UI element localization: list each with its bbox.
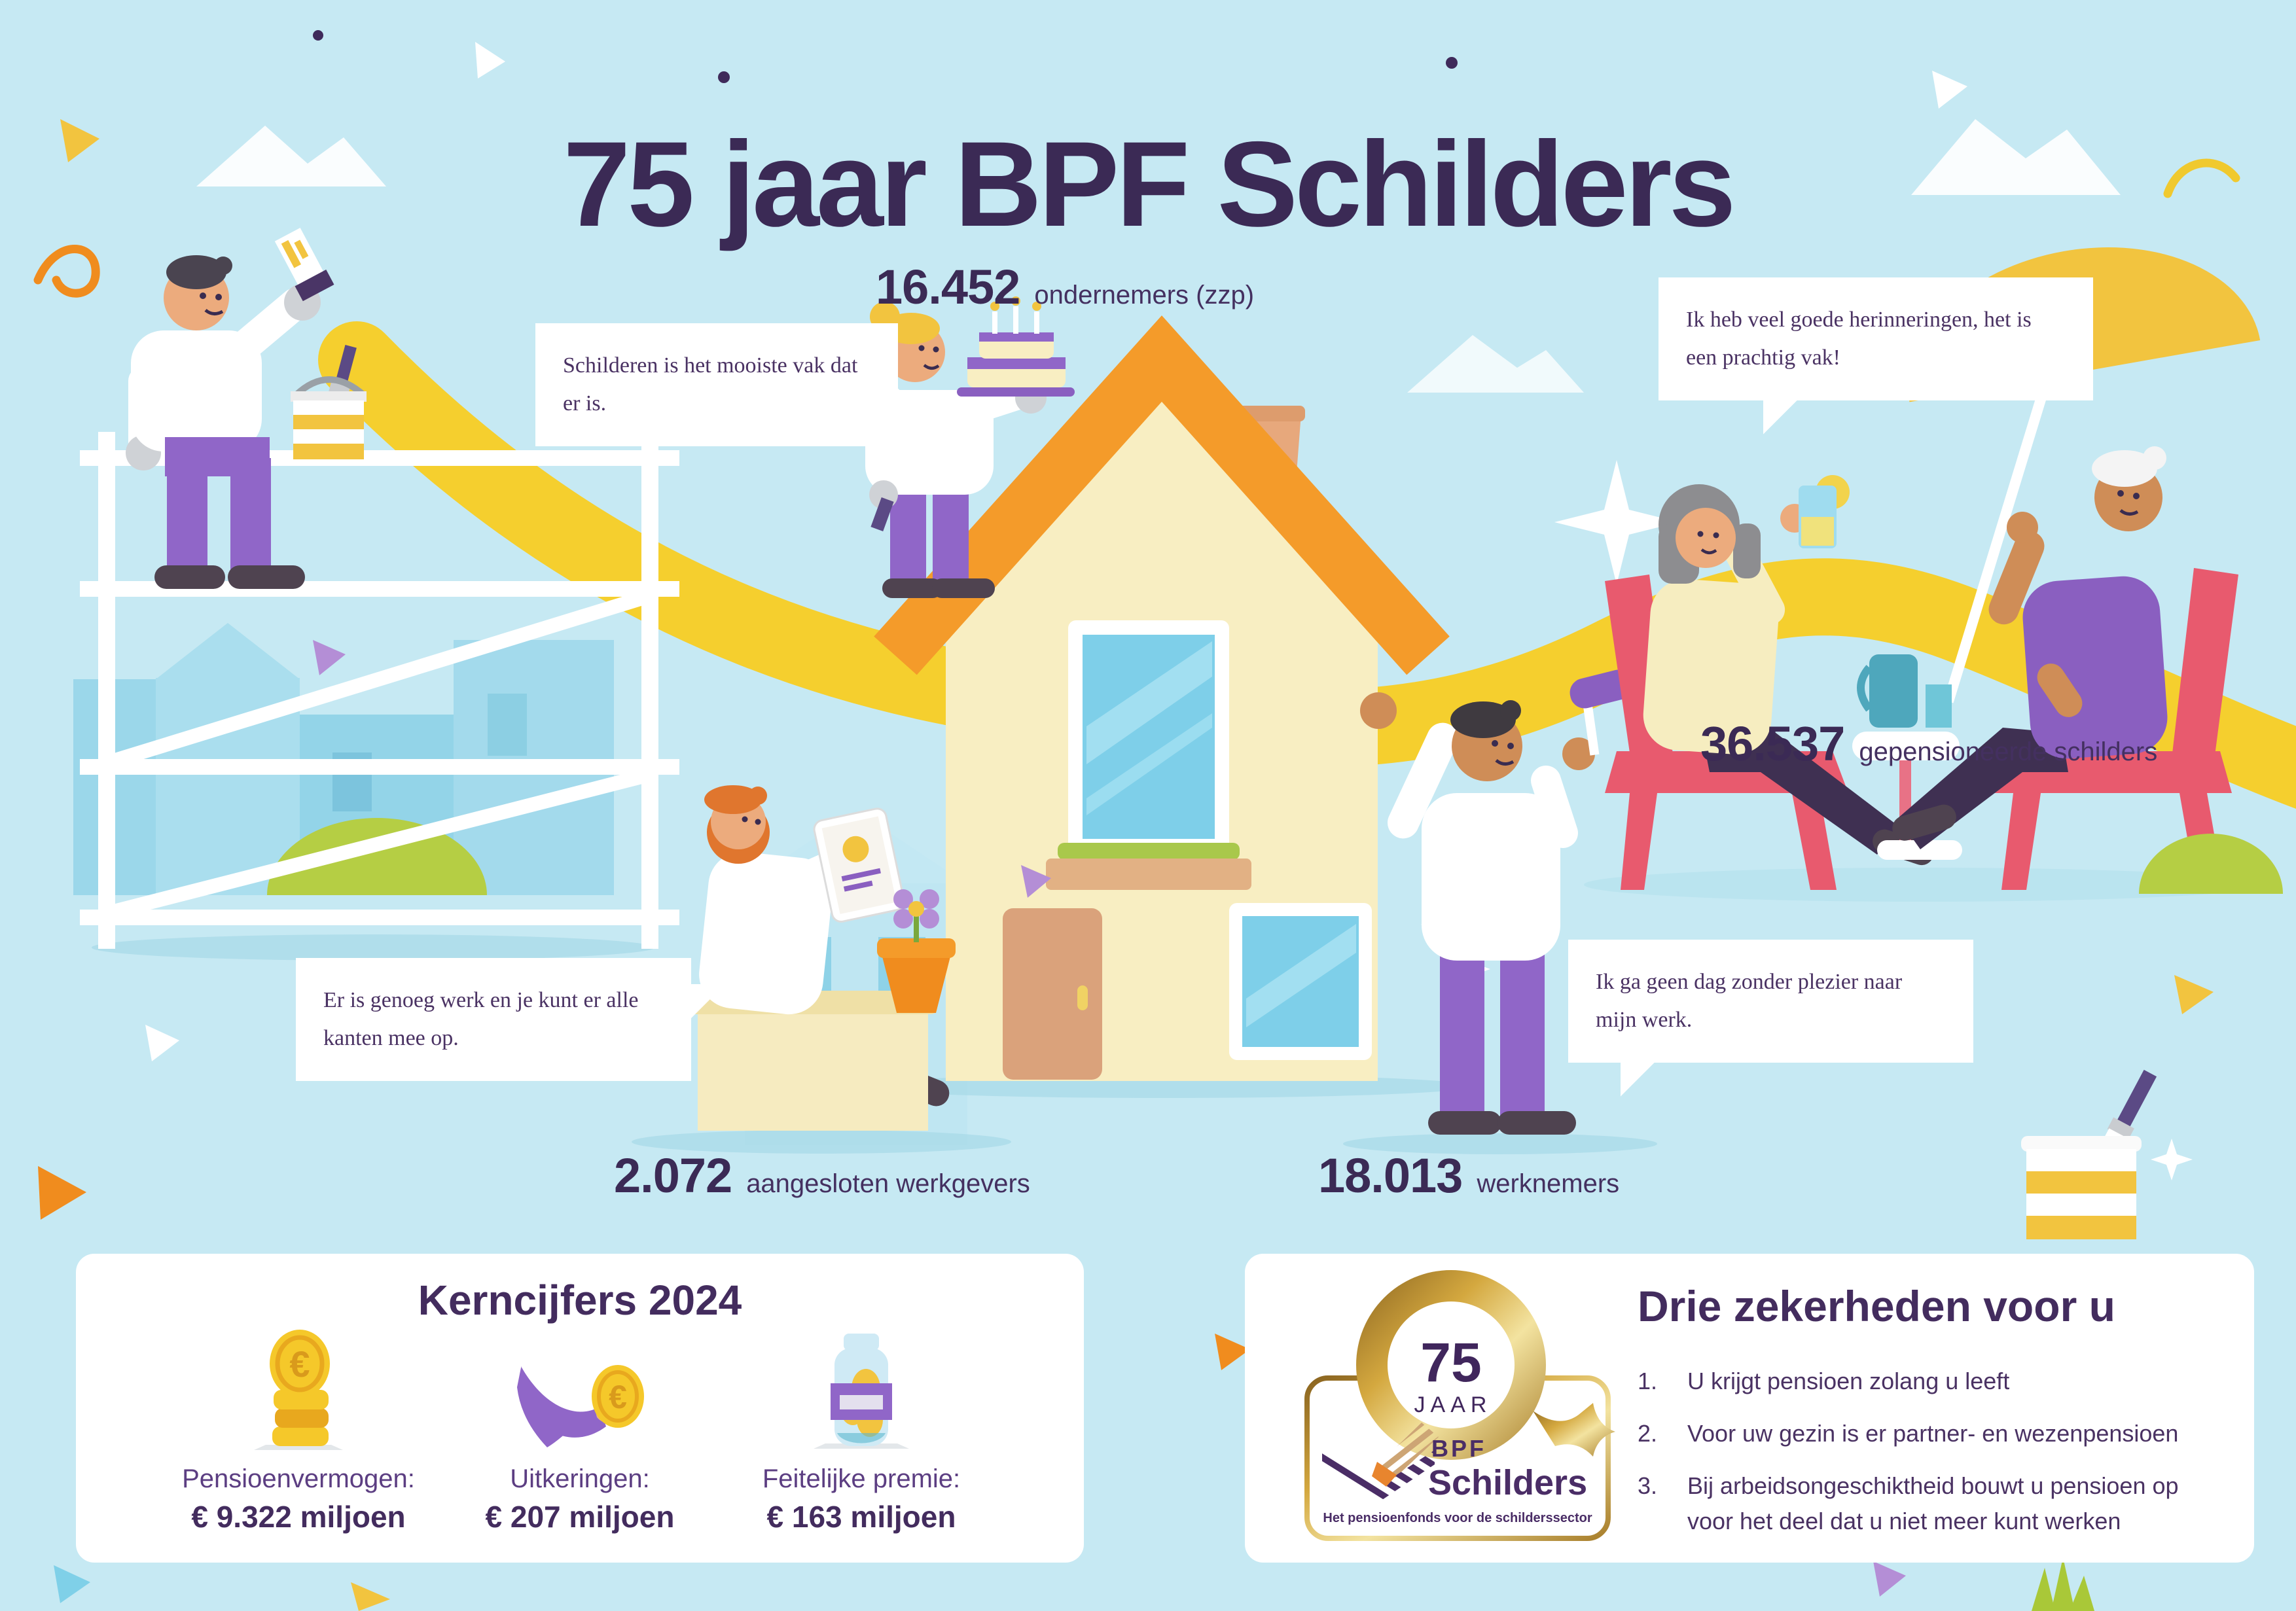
- stat-label: gepensioneerde schilders: [1859, 737, 2157, 767]
- stat-value: 36.537: [1700, 716, 1844, 771]
- brand-prefix: BPF: [1431, 1435, 1486, 1462]
- badge-label: JAAR: [1414, 1392, 1492, 1417]
- list-item-text: U krijgt pensioen zolang u leeft: [1687, 1364, 2009, 1399]
- kerncijfer-value: € 207 miljoen: [486, 1499, 675, 1534]
- zekerheden-card: 75 JAAR BPF Schilders Het pensioenfonds …: [1245, 1254, 2254, 1563]
- kerncijfers-card: Kerncijfers 2024 € Pensioenvermogen: € 9…: [76, 1254, 1084, 1563]
- list-item: 1. U krijgt pensioen zolang u leeft: [1638, 1364, 2187, 1399]
- euro-symbol: €: [609, 1379, 627, 1415]
- speech-bubble-gepensioneerde: Ik heb veel goede herinneringen, het is …: [1659, 277, 2093, 400]
- stat-ondernemers: 16.452 ondernemers (zzp): [876, 259, 1254, 315]
- stat-label: aangesloten werkgevers: [746, 1169, 1030, 1199]
- euro-symbol: €: [289, 1343, 310, 1385]
- list-item-text: Bij arbeidsongeschiktheid bouwt u pensio…: [1687, 1468, 2187, 1539]
- zekerheden-list: 1. U krijgt pensioen zolang u leeft 2. V…: [1638, 1364, 2187, 1556]
- kerncijfer-pensioenvermogen: € Pensioenvermogen: € 9.322 miljoen: [161, 1328, 436, 1534]
- speech-bubble-text: Ik heb veel goede herinneringen, het is …: [1686, 308, 2032, 370]
- kerncijfer-label: Uitkeringen:: [510, 1464, 649, 1494]
- kerncijfers-title: Kerncijfers 2024: [76, 1276, 1084, 1324]
- speech-bubble-text: Er is genoeg werk en je kunt er alle kan…: [323, 988, 638, 1050]
- paint-bucket-bottom: [2021, 1068, 2193, 1239]
- stat-gepensioneerden: 36.537 gepensioneerde schilders: [1700, 716, 2157, 771]
- brand-tagline: Het pensioenfonds voor de schilderssecto…: [1323, 1511, 1592, 1525]
- coin-stack-icon: €: [233, 1328, 364, 1453]
- stat-value: 2.072: [614, 1148, 732, 1203]
- coin-jar-icon: [806, 1328, 917, 1453]
- kerncijfer-label: Feitelijke premie:: [762, 1464, 960, 1494]
- list-item-number: 1.: [1638, 1364, 1668, 1399]
- stat-werkgevers: 2.072 aangesloten werkgevers: [614, 1148, 1030, 1203]
- stat-werknemers: 18.013 werknemers: [1318, 1148, 1619, 1203]
- speech-bubble-text: Ik ga geen dag zonder plezier naar mijn …: [1596, 970, 1902, 1032]
- kerncijfer-label: Pensioenvermogen:: [182, 1464, 415, 1494]
- stat-value: 18.013: [1318, 1148, 1462, 1203]
- bush-right: [2139, 834, 2283, 894]
- list-item-number: 3.: [1638, 1468, 1668, 1539]
- kerncijfer-uitkeringen: € Uitkeringen: € 207 miljoen: [442, 1328, 717, 1534]
- stat-value: 16.452: [876, 259, 1020, 315]
- zekerheden-title: Drie zekerheden voor u: [1638, 1281, 2115, 1331]
- badge-number: 75: [1420, 1332, 1481, 1393]
- list-item: 2. Voor uw gezin is er partner- en wezen…: [1638, 1416, 2187, 1451]
- page-title: 75 jaar BPF Schilders: [0, 115, 2296, 254]
- kerncijfer-value: € 9.322 miljoen: [191, 1499, 405, 1534]
- list-item-number: 2.: [1638, 1416, 1668, 1451]
- speech-bubble-zzp: Er is genoeg werk en je kunt er alle kan…: [296, 958, 691, 1081]
- hand-coin-icon: €: [508, 1328, 652, 1453]
- speech-bubble-painter: Schilderen is het mooiste vak dat er is.: [535, 323, 898, 446]
- speech-bubble-text: Schilderen is het mooiste vak dat er is.: [563, 353, 857, 416]
- brand-name: Schilders: [1428, 1463, 1587, 1502]
- stat-label: werknemers: [1477, 1169, 1619, 1199]
- bpf-schilders-logo: 75 JAAR BPF Schilders Het pensioenfonds …: [1271, 1260, 1624, 1563]
- speech-bubble-werknemer: Ik ga geen dag zonder plezier naar mijn …: [1568, 940, 1973, 1063]
- list-item: 3. Bij arbeidsongeschiktheid bouwt u pen…: [1638, 1468, 2187, 1539]
- list-item-text: Voor uw gezin is er partner- en wezenpen…: [1687, 1416, 2178, 1451]
- kerncijfer-value: € 163 miljoen: [767, 1499, 956, 1534]
- kerncijfer-premie: Feitelijke premie: € 163 miljoen: [724, 1328, 999, 1534]
- stat-label: ondernemers (zzp): [1034, 281, 1254, 310]
